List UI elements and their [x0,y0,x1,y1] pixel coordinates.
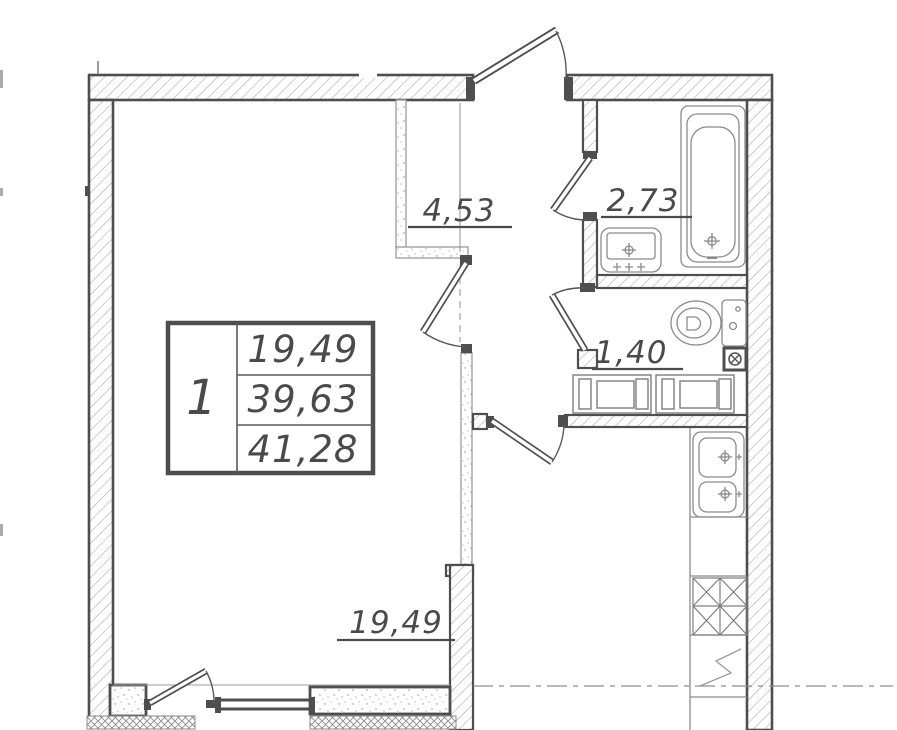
pillar [110,685,146,716]
floor-drain [724,348,746,370]
kitchen-faucet-icon-2 [718,487,742,501]
legend-unit-number: 1 [186,370,218,426]
living-partition-lower [450,565,473,730]
room-area-wc: 1,40 [594,335,667,371]
room-labels: 4,53 2,73 1,40 19,49 [337,183,692,641]
bottom-crosshatch-right [310,716,456,729]
kitchen-faucet-icon-1 [718,450,742,464]
wall-right [747,100,772,730]
counter-break-zigzag [700,649,741,686]
wall-top-right [567,75,772,100]
edge-artifacts [0,70,3,536]
entry-door [474,30,566,81]
wall-nub [85,186,90,196]
bathroom-sink [601,228,661,272]
bathtub [681,106,745,267]
room-area-bathroom: 2,73 [606,183,679,219]
bathroom-door [553,158,590,220]
kitchen-door-stub [473,414,487,429]
appliance-washing-machine-2 [656,375,734,413]
wc-door [552,288,585,350]
wall-left [89,100,113,718]
bathroom-wall-upper [583,100,597,152]
balcony-door [150,671,214,704]
window [218,700,311,709]
towel-rail-icon [613,263,645,271]
kitchen-door [492,421,564,462]
bathroom-south-wall [597,275,747,288]
bottom-stipple-wall [310,687,450,714]
sink-faucet-icon [622,243,636,257]
toilet [671,300,746,346]
bottom-crosshatch-left [87,716,195,729]
living-partition-upper [461,353,472,565]
legend-value-3: 41,28 [248,428,359,471]
stove [693,578,747,635]
appliance-washing-machine-1 [573,375,651,413]
hall-kitchen-wall [565,415,747,427]
wall-top-left [89,75,473,100]
legend-value-2: 39,63 [248,378,359,421]
kitchen-sink [693,432,744,517]
floor-plan: 1 19,49 39,63 41,28 4,53 2,73 1,40 19,49 [0,0,897,730]
room-area-hall: 4,53 [422,193,495,229]
room-area-living: 19,49 [349,605,443,641]
legend-table: 1 19,49 39,63 41,28 [168,323,373,473]
hall-stub-wall [396,247,468,258]
bathtub-faucet-icon [704,233,720,249]
legend-value-1: 19,49 [248,328,359,371]
hall-partition [396,100,406,248]
wall-tick [97,61,99,74]
bathroom-wall-lower [583,220,597,287]
wall-joint-gap [359,72,377,78]
